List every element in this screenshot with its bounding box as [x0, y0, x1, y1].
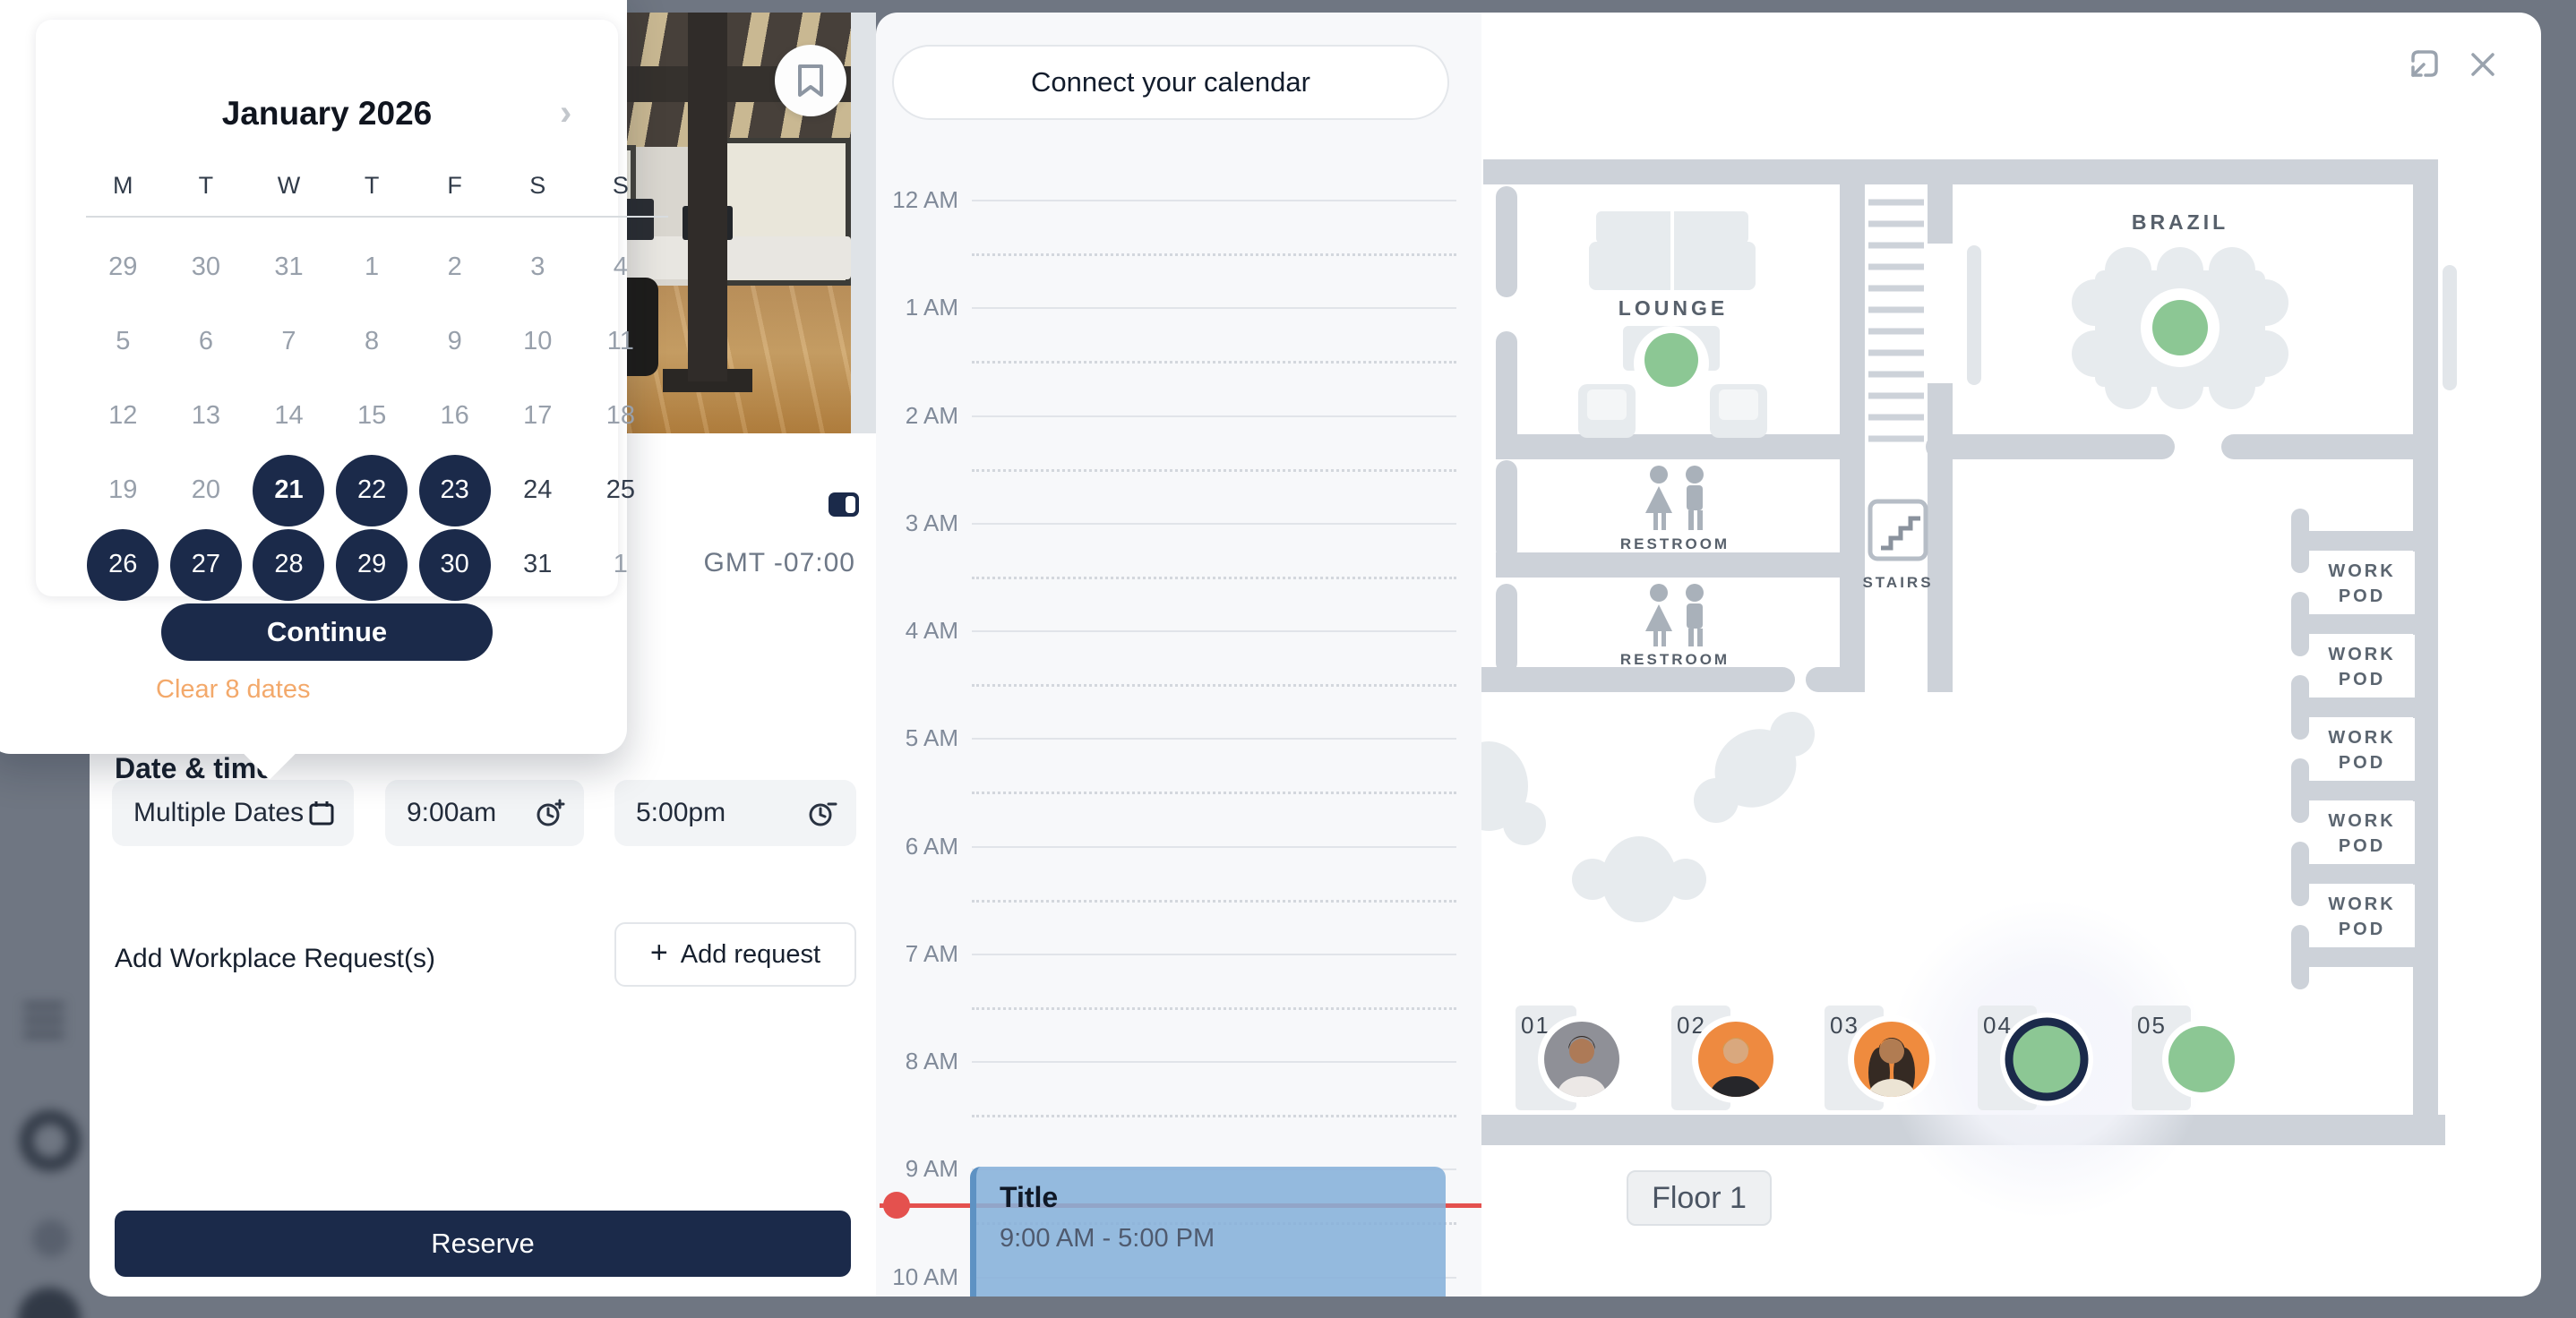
restroom-lower-label: RESTROOM [1620, 651, 1730, 668]
work-pod-label: WORK [2328, 811, 2395, 831]
calendar-day[interactable]: 4 [585, 232, 657, 304]
date-picker-popover: January 2026 › M T W T F S S 29 30 31 1 … [0, 0, 627, 754]
close-button[interactable] [2465, 47, 2501, 85]
blurred-icon [32, 1220, 70, 1257]
day-schedule-panel: Connect your calendar 12 AM 1 AM 2 AM 3 … [876, 13, 1481, 1297]
hour-line [972, 307, 1456, 309]
half-hour-line [972, 684, 1456, 687]
weekday: S [502, 167, 573, 203]
work-pod-label: POD [2339, 753, 2385, 773]
lounge-room: LOUNGE [1578, 211, 1767, 438]
calendar-day[interactable]: 11 [585, 306, 657, 378]
calendar-day-selected[interactable]: 29 [336, 529, 408, 601]
end-time-field[interactable]: 5:00pm [614, 780, 856, 846]
calendar-event-block[interactable]: Title 9:00 AM - 5:00 PM [970, 1167, 1446, 1297]
calendar-card: January 2026 › M T W T F S S 29 30 31 1 … [36, 20, 618, 596]
date-field-value: Multiple Dates [133, 798, 304, 828]
hour-label: 10 AM [876, 1263, 958, 1291]
brazil-available-seat[interactable] [2152, 300, 2208, 355]
event-title: Title [1000, 1181, 1058, 1214]
desk-number: 03 [1830, 1012, 1859, 1039]
blurred-avatar-bottom [18, 1288, 81, 1318]
hour-line [972, 523, 1456, 525]
half-hour-line [972, 792, 1456, 794]
hour-label: 7 AM [876, 940, 958, 968]
start-time-field[interactable]: 9:00am [385, 780, 584, 846]
connect-calendar-button[interactable]: Connect your calendar [892, 45, 1449, 120]
calendar-day[interactable]: 3 [502, 232, 573, 304]
calendar-day-selected[interactable]: 30 [419, 529, 491, 601]
hour-line [972, 630, 1456, 632]
start-time-value: 9:00am [407, 798, 496, 828]
restroom-upper-label: RESTROOM [1620, 535, 1730, 552]
clear-dates-link[interactable]: Clear 8 dates [156, 675, 311, 705]
brazil-room: BRAZIL [2072, 210, 2288, 409]
hour-label: 3 AM [876, 509, 958, 537]
blurred-avatar [20, 1110, 81, 1171]
clock-plus-icon [536, 798, 566, 828]
workplace-booking-screen: GMT -07:00 Date & time Multiple Dates 9:… [0, 0, 2576, 1318]
desk-row: 01 02 03 04 05 [1516, 1006, 2241, 1116]
weekday: M [87, 167, 159, 203]
open-space-tables [1481, 712, 1815, 922]
hour-label: 4 AM [876, 617, 958, 645]
half-hour-line [972, 1115, 1456, 1117]
reserve-button[interactable]: Reserve [115, 1211, 851, 1277]
calendar-day[interactable]: 9 [419, 306, 491, 378]
weekday: F [419, 167, 491, 203]
work-pod-label: POD [2339, 920, 2385, 939]
hour-label: 1 AM [876, 294, 958, 321]
half-hour-line [972, 1007, 1456, 1010]
hour-label: 8 AM [876, 1048, 958, 1075]
lounge-available-seat[interactable] [1644, 333, 1698, 387]
hour-line [972, 415, 1456, 417]
event-time-range: 9:00 AM - 5:00 PM [1000, 1224, 1215, 1254]
calendar-day[interactable]: 8 [336, 306, 408, 378]
calendar-day[interactable]: 1 [585, 529, 657, 601]
add-request-button[interactable]: + Add request [614, 922, 856, 987]
calendar-icon [307, 799, 336, 827]
blurred-menu-icon [23, 1003, 64, 1046]
date-field[interactable]: Multiple Dates [112, 780, 354, 846]
desk-marker-04-selected[interactable] [2000, 1013, 2093, 1106]
calendar-day[interactable]: 19 [87, 455, 159, 526]
close-icon [2465, 47, 2501, 82]
weekday: T [170, 167, 242, 203]
bookmark-button[interactable] [775, 45, 846, 116]
calendar-day-selected[interactable]: 28 [253, 529, 324, 601]
calendar-day[interactable]: 1 [336, 232, 408, 304]
calendar-day[interactable]: 15 [336, 381, 408, 452]
calendar-day[interactable]: 7 [253, 306, 324, 378]
floor-selector[interactable]: Floor 1 [1627, 1170, 1772, 1226]
calendar-day[interactable]: 30 [170, 232, 242, 304]
work-pod-label: WORK [2328, 728, 2395, 748]
floorplan-map[interactable]: STAIRS LOUNGE [1481, 13, 2541, 1297]
bookmark-icon [794, 63, 827, 98]
calendar-day[interactable]: 31 [502, 529, 573, 601]
calendar-day[interactable]: 2 [419, 232, 491, 304]
half-hour-line [972, 900, 1456, 903]
half-hour-line [972, 469, 1456, 472]
hour-label: 2 AM [876, 402, 958, 430]
weekday-header: M T W T F S S [82, 167, 662, 203]
hour-line [972, 846, 1456, 848]
restroom-upper: RESTROOM [1620, 466, 1730, 552]
layout-toggle-icon[interactable] [829, 492, 859, 517]
next-month-button[interactable]: › [560, 95, 571, 131]
hour-line [972, 1061, 1456, 1063]
stairs-label: STAIRS [1862, 574, 1933, 591]
lounge-label: LOUNGE [1619, 296, 1728, 320]
restroom-lower: RESTROOM [1620, 584, 1730, 668]
calendar-day[interactable]: 25 [585, 455, 657, 526]
weekday: S [585, 167, 657, 203]
work-pod-label: POD [2339, 670, 2385, 689]
half-hour-line [972, 253, 1456, 256]
hour-label: 6 AM [876, 833, 958, 860]
calendar-day[interactable]: 24 [502, 455, 573, 526]
calendar-day[interactable]: 20 [170, 455, 242, 526]
brazil-label: BRAZIL [2132, 210, 2228, 234]
hour-line [972, 200, 1456, 201]
calendar-day[interactable]: 10 [502, 306, 573, 378]
desk-marker-05-available[interactable] [2162, 1020, 2241, 1099]
stairs-area: STAIRS [1862, 202, 1933, 591]
hour-label: 5 AM [876, 724, 958, 752]
photo-edge [851, 13, 876, 433]
weekday: T [336, 167, 408, 203]
floorplan-panel: STAIRS LOUNGE [1481, 13, 2541, 1297]
hour-label: 12 AM [876, 186, 958, 214]
calendar-day[interactable]: 29 [87, 232, 159, 304]
calendar-day[interactable]: 18 [585, 381, 657, 452]
calendar-day-selected[interactable]: 22 [336, 455, 408, 526]
popout-button[interactable] [2404, 45, 2442, 85]
calendar-day[interactable]: 13 [170, 381, 242, 452]
calendar-day[interactable]: 16 [419, 381, 491, 452]
desk-number: 05 [2137, 1012, 2167, 1039]
half-hour-line [972, 361, 1456, 364]
stairs-icon [1870, 501, 1926, 559]
workplace-requests-label: Add Workplace Request(s) [115, 944, 435, 974]
work-pods: WORK POD WORK POD WORK POD WORK POD WORK… [2309, 552, 2415, 947]
popout-icon [2404, 45, 2442, 82]
add-request-label: Add request [681, 940, 820, 970]
calendar-day[interactable]: 14 [253, 381, 324, 452]
calendar-divider [86, 216, 668, 218]
calendar-day[interactable]: 5 [87, 306, 159, 378]
hour-label: 9 AM [876, 1155, 958, 1183]
calendar-month-title: January 2026 [36, 95, 618, 133]
calendar-day[interactable]: 17 [502, 381, 573, 452]
calendar-day[interactable]: 31 [253, 232, 324, 304]
calendar-day[interactable]: 6 [170, 306, 242, 378]
calendar-day-selected[interactable]: 21 [253, 455, 324, 526]
work-pod-label: POD [2339, 586, 2385, 606]
hour-line [972, 954, 1456, 955]
calendar-day-selected[interactable]: 23 [419, 455, 491, 526]
plus-icon: + [650, 936, 668, 971]
calendar-day-selected[interactable]: 26 [87, 529, 159, 601]
work-pod-label: WORK [2328, 561, 2395, 581]
work-pod-label: WORK [2328, 645, 2395, 664]
current-time-dot [883, 1192, 910, 1219]
weekday: W [253, 167, 324, 203]
calendar-day-selected[interactable]: 27 [170, 529, 242, 601]
calendar-day[interactable]: 12 [87, 381, 159, 452]
continue-button[interactable]: Continue [161, 603, 493, 661]
work-pod-label: WORK [2328, 894, 2395, 914]
hour-line [972, 738, 1456, 740]
clock-minus-icon [808, 798, 838, 828]
half-hour-line [972, 577, 1456, 579]
end-time-value: 5:00pm [636, 798, 726, 828]
work-pod-label: POD [2339, 836, 2385, 856]
calendar-days-grid: 29 30 31 1 2 3 4 5 6 7 8 9 10 11 12 13 1… [82, 230, 662, 602]
